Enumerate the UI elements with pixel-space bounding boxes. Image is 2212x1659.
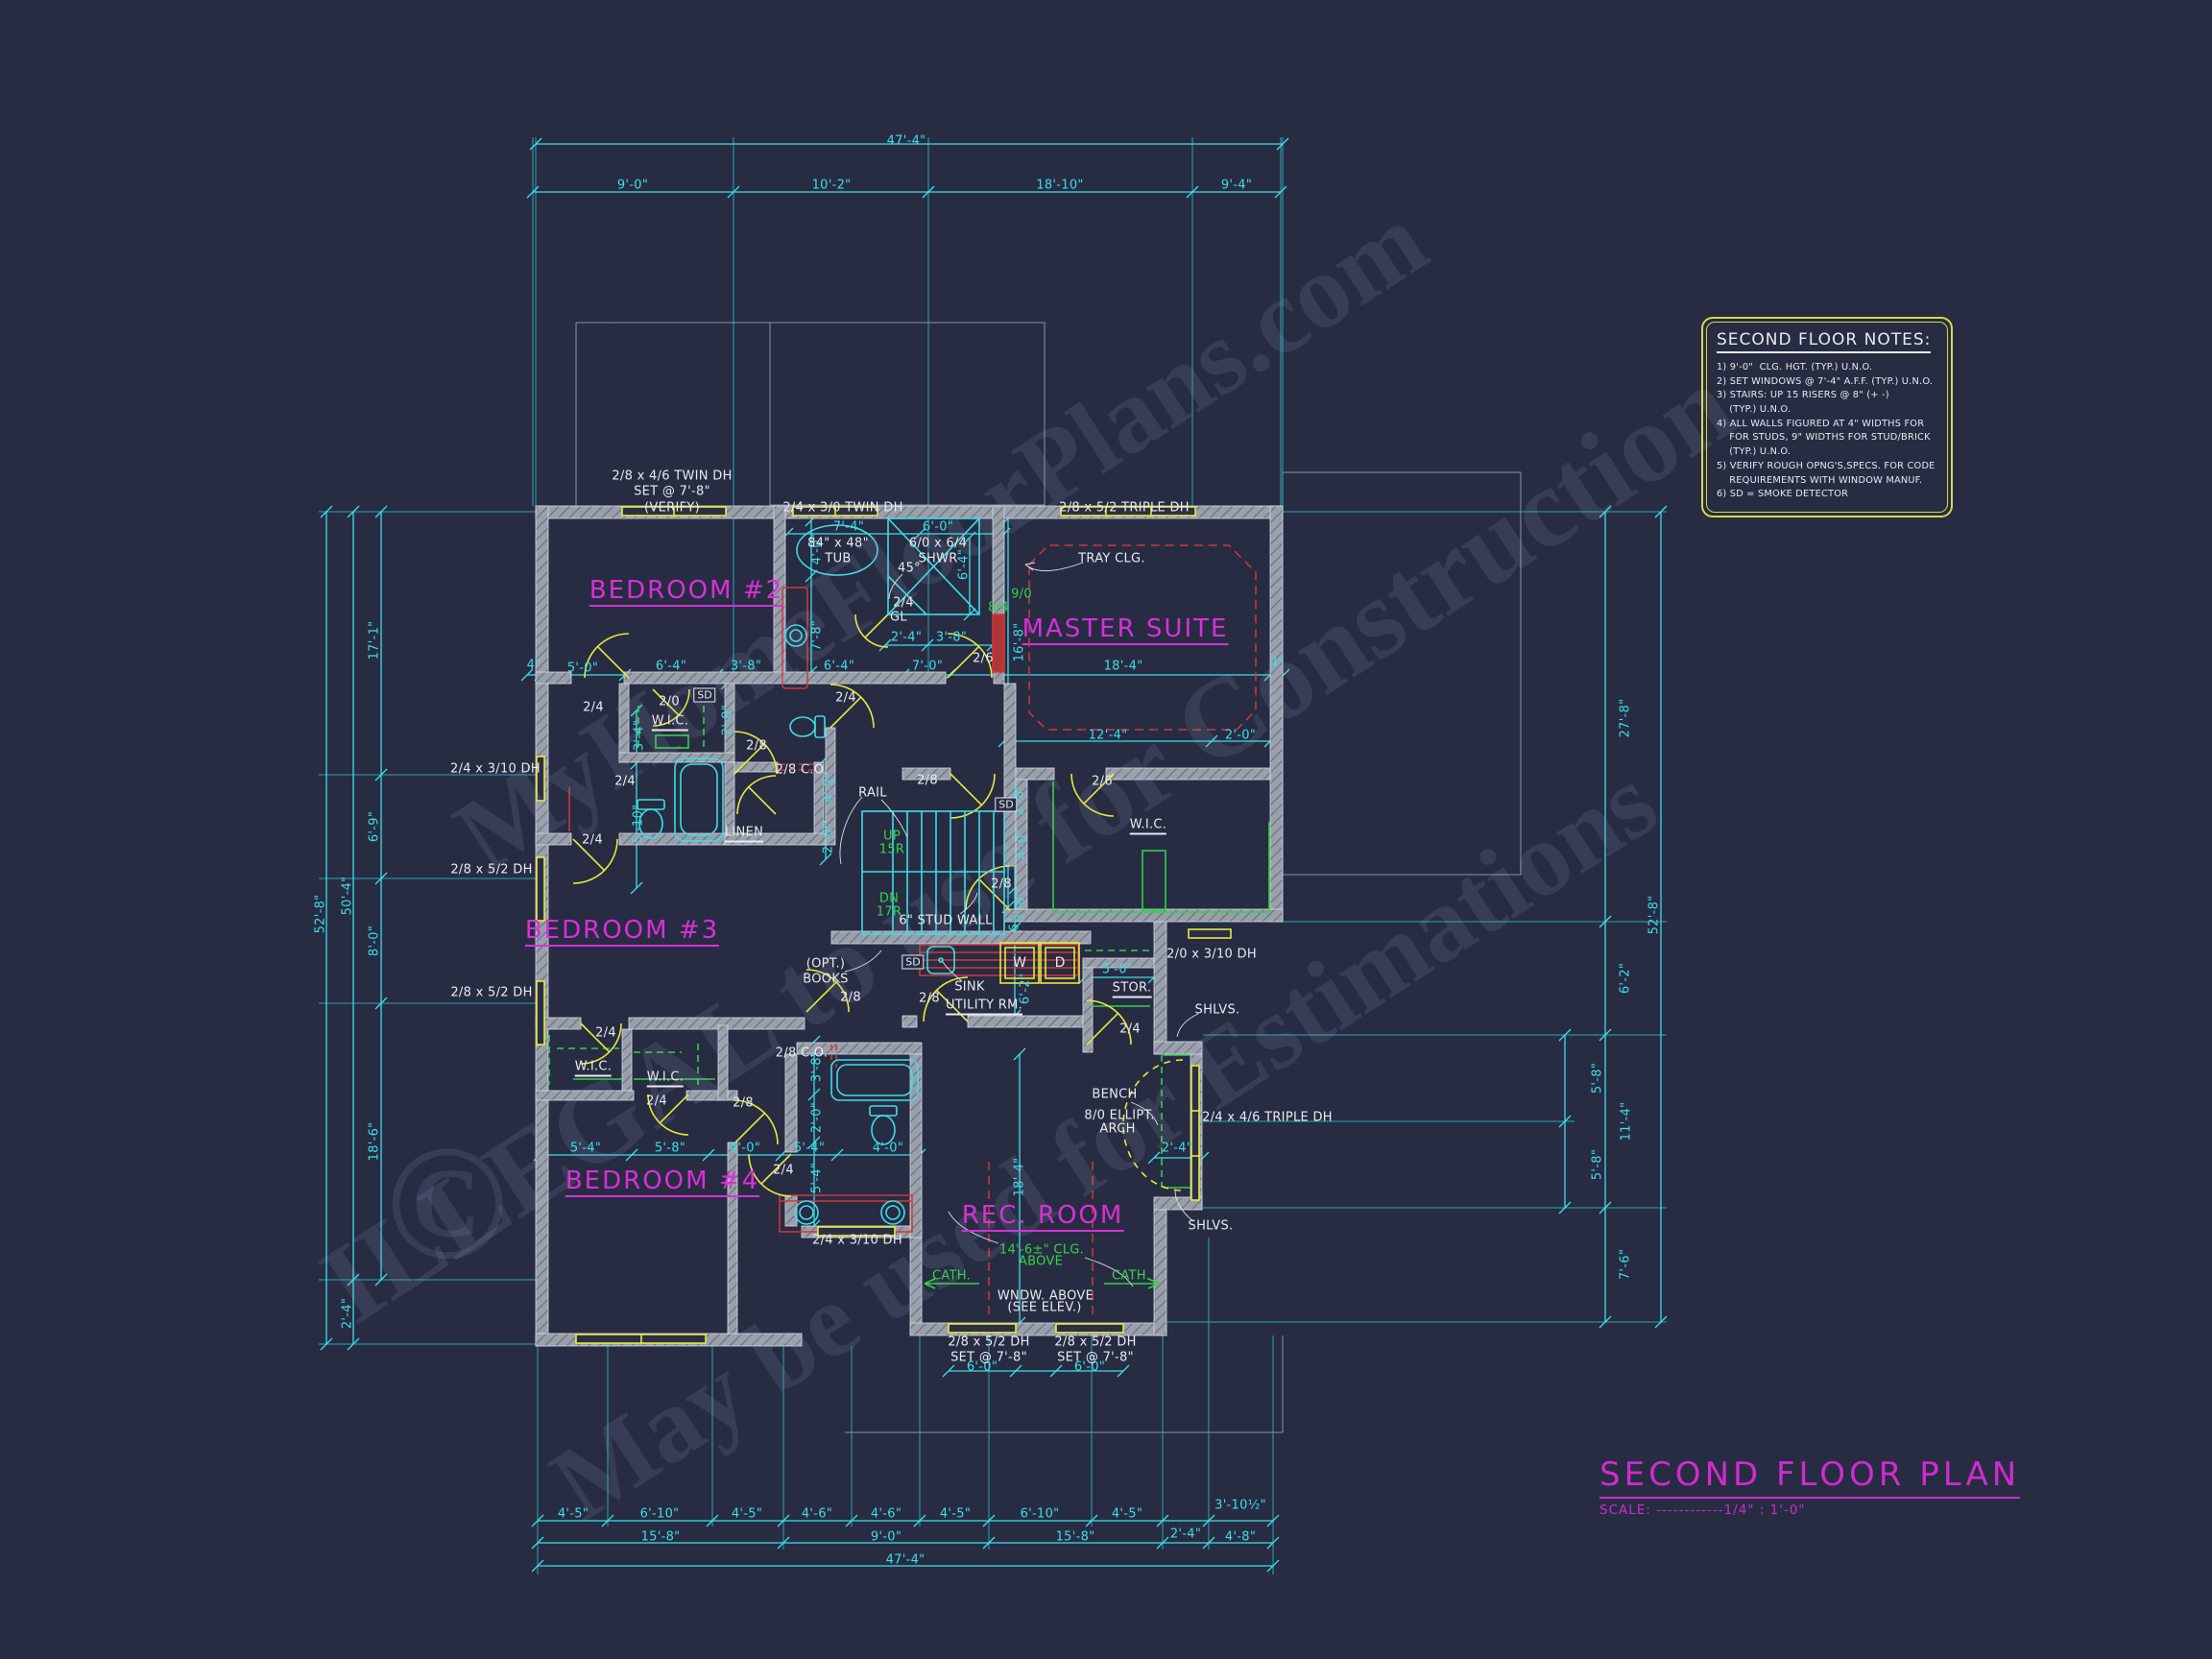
dimension-label: 5'-8"	[1592, 1063, 1604, 1094]
note-line: (TYP.) U.N.O.	[1717, 403, 1937, 418]
dimension-label: 4"	[527, 660, 541, 672]
dimension-label: 5'-4"	[794, 1142, 825, 1155]
dimension-label: 15'-8"	[1056, 1531, 1095, 1544]
dimension-label: 2'-8"	[722, 705, 734, 735]
appliance-letter: W	[1013, 956, 1026, 970]
annotation-label: 2/4	[835, 692, 856, 705]
annotation-label: 2/4	[582, 834, 603, 847]
note-line: 3) STAIRS: UP 15 RISERS @ 8" (+ -)	[1717, 389, 1937, 403]
annotation-label: W.I.C.	[575, 1061, 612, 1077]
dimension-label: 50'-4"	[342, 877, 354, 916]
second-floor-notes-box: SECOND FLOOR NOTES: 1) 9'-0" CLG. HGT. (…	[1701, 317, 1953, 517]
green-note-label: 17R	[877, 906, 902, 919]
dimension-label: 2'-4"	[891, 632, 922, 644]
annotation-label: 2/4 x 3/10 DH	[812, 1235, 902, 1247]
annotation-label: 2/0 x 3/10 DH	[1166, 949, 1257, 961]
annotation-label: SHLVS.	[1189, 1220, 1234, 1233]
dimension-label: 4'-5"	[1112, 1508, 1142, 1521]
green-note-label: ABOVE	[1019, 1256, 1063, 1268]
dimension-label: 6'-4"	[824, 661, 854, 673]
smoke-detector-box: SD	[902, 955, 924, 970]
dimension-label: 4'-6"	[871, 1508, 902, 1521]
dimension-label: 2'-4"	[1162, 1142, 1192, 1155]
dimension-label: 12'-4"	[1089, 730, 1128, 742]
dimension-label: 17'-1"	[369, 621, 381, 661]
dimension-label: 6'-9"	[369, 811, 381, 842]
dimension-label: 6'-4"	[656, 661, 686, 673]
dimension-label: 6'-10"	[1021, 1508, 1060, 1521]
dimension-label: 5'-0"	[1102, 964, 1133, 976]
green-note-label: UP	[883, 830, 901, 843]
dimension-label: 2'-0"	[811, 1102, 824, 1133]
annotation-label: 2/4	[1119, 1023, 1141, 1036]
note-line: REQUIREMENTS WITH WINDOW MANUF.	[1717, 474, 1937, 489]
annotation-label: 45°	[898, 563, 921, 575]
dimension-label: 5'-8"	[655, 1142, 685, 1155]
annotation-label: (OPT.)	[806, 958, 846, 971]
annotation-label: 2/8 x 5/2 DH	[948, 1336, 1029, 1349]
annotation-label: 2/4 x 4/6 TRIPLE DH	[1202, 1112, 1333, 1124]
dimension-label: 4'-6"	[802, 1508, 832, 1521]
dimension-label: 4'-8"	[1225, 1531, 1256, 1544]
annotation-label: SHWR	[918, 553, 957, 565]
note-line: (TYP.) U.N.O.	[1717, 445, 1937, 460]
annotation-label: 6" STUD WALL	[899, 915, 992, 927]
annotation-label: 2/4	[583, 702, 604, 714]
dimension-label: 18'-4"	[1014, 1158, 1026, 1197]
note-line: 6) SD = SMOKE DETECTOR	[1717, 488, 1937, 502]
dimension-label: 4'-5"	[940, 1508, 971, 1521]
dimension-label: 5'-8"	[1592, 1149, 1604, 1180]
annotation-label: W.I.C.	[1130, 819, 1166, 835]
dimension-label: 7'-4"	[833, 521, 864, 534]
green-note-label: 9/0	[1011, 589, 1032, 601]
dimension-label: 5'-10"	[633, 805, 645, 844]
dimension-label: 4"	[1270, 658, 1285, 670]
dimension-label: 9'-0"	[617, 180, 648, 192]
dimension-label: 2'-0"	[1225, 730, 1256, 742]
annotation-label: 2/8 x 5/2 DH	[1054, 1336, 1136, 1349]
dimension-label: 18'-4"	[1104, 661, 1143, 673]
annotation-label: 2/8 x 5/2 DH	[450, 864, 532, 877]
dimension-label: 6"	[1009, 918, 1022, 932]
dimension-label: 4'-0"	[730, 1142, 760, 1155]
smoke-detector-box: SD	[693, 688, 715, 703]
annotation-label: SET @ 7'-8"	[1057, 1352, 1134, 1364]
annotation-label: 2/8	[919, 993, 940, 1005]
note-line: 5) VERIFY ROUGH OPNG'S,SPECS. FOR CODE	[1717, 460, 1937, 474]
annotation-label: SET @ 7'-8"	[634, 486, 710, 498]
dimension-label: 6'-2"	[1620, 963, 1632, 994]
annotation-label: 84" x 48"	[807, 538, 869, 550]
dimension-label: 5'-4"	[811, 1163, 824, 1193]
room-label: MASTER SUITE	[1022, 616, 1229, 645]
green-note-label: 8/4	[988, 602, 1009, 614]
note-line: 4) ALL WALLS FIGURED AT 4" WIDTHS FOR	[1717, 418, 1937, 432]
annotation-label: STOR.	[1113, 982, 1152, 998]
sheet-scale: SCALE: ------------1/4" : 1'-0"	[1599, 1503, 2020, 1518]
dimension-label: 8'-0"	[369, 926, 381, 956]
annotation-label: SHLVS.	[1195, 1004, 1240, 1017]
annotation-label: 2/4	[595, 1027, 616, 1040]
annotation-label: TUB	[825, 553, 851, 565]
annotation-label: 2/8	[917, 775, 938, 787]
room-label: REC. ROOM	[962, 1203, 1124, 1232]
annotation-label: TRAY CLG.	[1078, 553, 1145, 565]
dimension-label: 10'-2"	[812, 180, 852, 192]
annotation-label: LINEN	[725, 827, 763, 843]
sheet-title: SECOND FLOOR PLAN	[1599, 1455, 2020, 1499]
annotation-label: 2/4	[773, 1165, 794, 1177]
dimension-label: 3'-4"	[634, 720, 646, 751]
title-block: SECOND FLOOR PLAN SCALE: ------------1/4…	[1599, 1455, 2020, 1518]
dimension-label: 5'-4"	[570, 1142, 601, 1155]
green-note-label: CATH.	[1112, 1270, 1150, 1283]
green-note-label: DN	[879, 893, 899, 905]
dimension-label: 3'-8"	[936, 632, 967, 644]
dimension-label: 6'-0"	[923, 521, 953, 534]
dimension-label: 52'-8"	[315, 895, 327, 934]
annotation-label: 8/0 ELLIPT.	[1084, 1110, 1154, 1122]
annotation-label: 6/0 x 6/4	[909, 538, 968, 550]
dimension-label: 4'-0"	[1017, 829, 1029, 859]
room-label: BEDROOM #4	[565, 1168, 759, 1197]
note-line: 2) SET WINDOWS @ 7'-4" A.F.F. (TYP.) U.N…	[1717, 375, 1937, 390]
dimension-label: 7'-8"	[811, 620, 824, 651]
annotation-label: W.I.C.	[647, 1071, 684, 1088]
annotation-label: 2/4	[646, 1095, 667, 1108]
annotation-label: 2/0	[659, 696, 680, 709]
dimension-label: 9'-0"	[871, 1531, 902, 1544]
annotation-label: 2/4	[893, 597, 914, 610]
dimension-label: 7'-6"	[1620, 1249, 1632, 1280]
floor-plan-canvas: MyHomeFloorPlans.comILLEGAL to use for C…	[0, 0, 2212, 1659]
dimension-label: 2'-4"	[1170, 1528, 1201, 1541]
dimension-label: 6'-10"	[640, 1508, 680, 1521]
annotation-label: BENCH	[1092, 1089, 1137, 1101]
dimension-label: 4'-5"	[558, 1508, 589, 1521]
annotation-label: 2/8	[746, 740, 767, 753]
annotation-label: 2/8 x 4/6 TWIN DH	[612, 470, 732, 483]
dimension-label: 5'-0"	[567, 662, 598, 675]
dimension-label: 15'-8"	[641, 1531, 681, 1544]
annotation-label: 2/6	[1092, 776, 1113, 788]
annotation-label: ARCH	[1099, 1123, 1135, 1136]
note-line: FOR STUDS, 9" WIDTHS FOR STUD/BRICK	[1717, 431, 1937, 445]
room-label: BEDROOM #3	[525, 918, 719, 947]
annotation-label: 2/8	[840, 992, 861, 1004]
annotation-label: SINK	[954, 981, 985, 994]
annotation-label: 2/6	[973, 653, 994, 665]
note-line: 1) 9'-0" CLG. HGT. (TYP.) U.N.O.	[1717, 361, 1937, 375]
dimension-label: 11'-4"	[1621, 1102, 1633, 1142]
smoke-detector-box: SD	[995, 798, 1017, 812]
green-note-label: 15R	[879, 844, 904, 856]
annotation-label: UTILITY RM.	[946, 999, 1022, 1016]
notes-list: 1) 9'-0" CLG. HGT. (TYP.) U.N.O.2) SET W…	[1717, 361, 1937, 502]
dimension-label: 2'-0"	[823, 823, 835, 854]
annotation-label: 2/8 x 5/2 DH	[450, 987, 532, 999]
dimension-label: 7'-0"	[912, 661, 943, 673]
dimension-label: 18'-10"	[1036, 180, 1083, 192]
appliance-letter: D	[1055, 956, 1066, 970]
dimension-label: 2'-4"	[342, 1298, 354, 1329]
dimension-label: 18'-6"	[369, 1122, 381, 1162]
dimension-label: 3'-8"	[731, 661, 761, 673]
dimension-label: 3'-10½"	[1214, 1500, 1266, 1512]
text-labels-layer: 47'-4"9'-0"10'-2"18'-10"9'-4"4'-5"6'-10"…	[0, 0, 2212, 1659]
notes-inner-border: SECOND FLOOR NOTES: 1) 9'-0" CLG. HGT. (…	[1706, 322, 1948, 513]
annotation-label: 2/8 x 5/2 TRIPLE DH	[1059, 502, 1190, 515]
annotation-label: (VERIFY)	[644, 502, 700, 515]
notes-title: SECOND FLOOR NOTES:	[1717, 330, 1931, 353]
dimension-label: 4'-5"	[732, 1508, 762, 1521]
dimension-label: 52'-8"	[1648, 896, 1661, 935]
annotation-label: GL	[890, 612, 907, 624]
annotation-label: 2/8 C.O.	[776, 1047, 829, 1060]
annotation-label: 2/4	[614, 776, 636, 788]
annotation-label: RAIL	[858, 787, 887, 800]
annotation-label: 2/8	[733, 1097, 754, 1110]
annotation-label: 2/4 x 3/0 TWIN DH	[782, 502, 902, 515]
annotation-label: 2/8 C.O.	[776, 764, 829, 777]
dimension-label: 47'-4"	[886, 1554, 926, 1567]
annotation-label: (SEE ELEV.)	[1007, 1302, 1081, 1314]
dimension-label: 4'-0"	[873, 1142, 903, 1155]
annotation-label: BOOKS	[803, 974, 848, 986]
annotation-label: 2/4 x 3/10 DH	[450, 763, 541, 776]
dimension-label: 27'-8"	[1620, 699, 1632, 738]
dimension-label: 47'-4"	[887, 135, 926, 148]
annotation-label: SET @ 7'-8"	[950, 1352, 1027, 1364]
dimension-label: 6'-4"	[958, 549, 971, 580]
annotation-label: 2/8	[991, 878, 1012, 891]
room-label: BEDROOM #2	[589, 578, 783, 607]
dimension-label: 9'-4"	[1221, 180, 1252, 192]
green-note-label: CATH.	[932, 1270, 971, 1283]
annotation-label: W.I.C.	[652, 715, 688, 732]
